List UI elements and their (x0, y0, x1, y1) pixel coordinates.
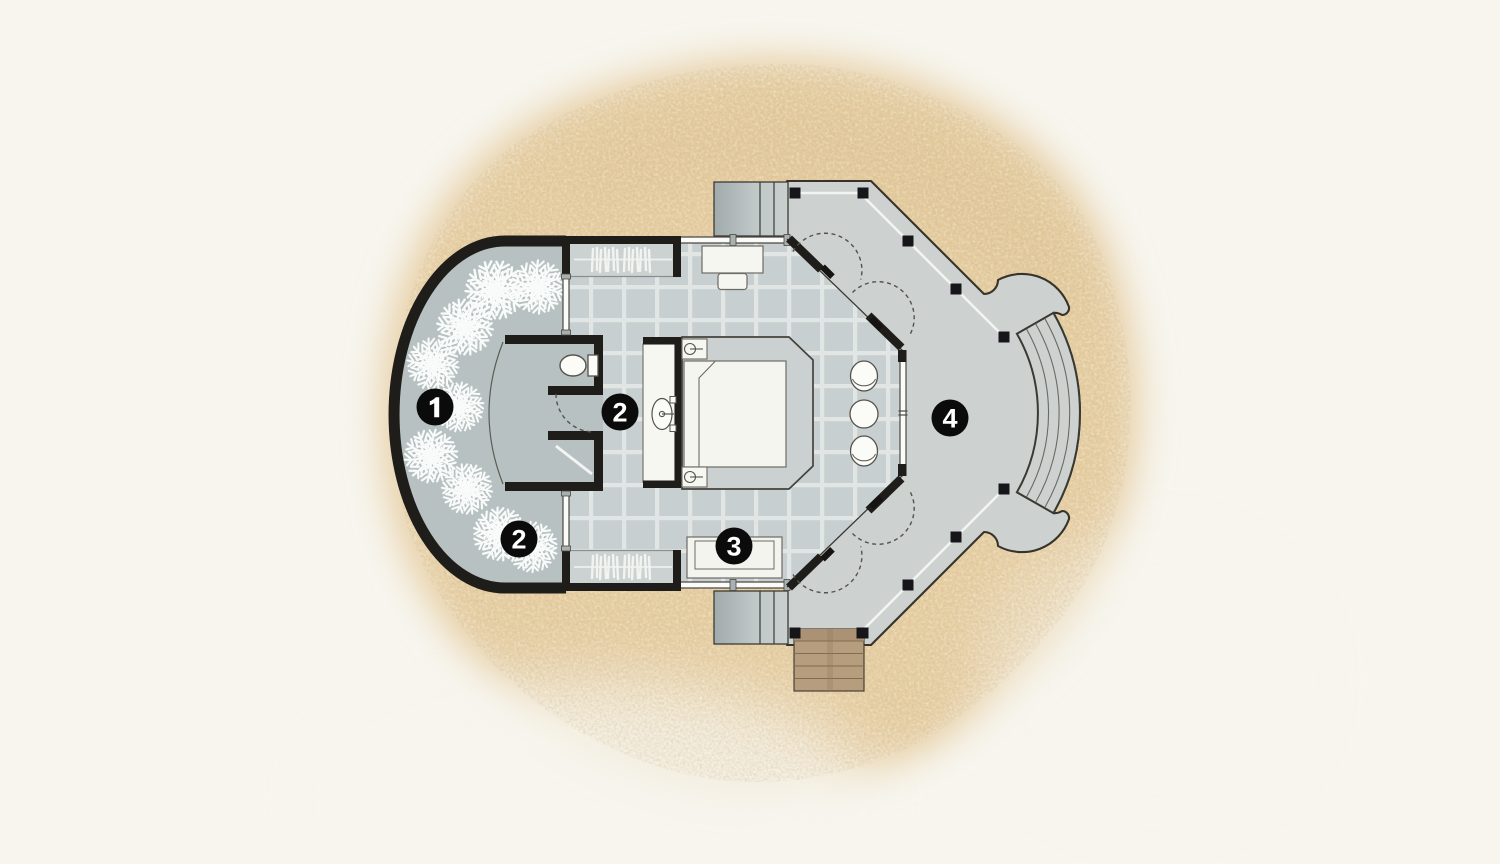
svg-text:2: 2 (612, 398, 627, 428)
svg-text:2: 2 (511, 525, 526, 555)
svg-text:3: 3 (726, 532, 741, 562)
svg-text:4: 4 (942, 404, 957, 434)
